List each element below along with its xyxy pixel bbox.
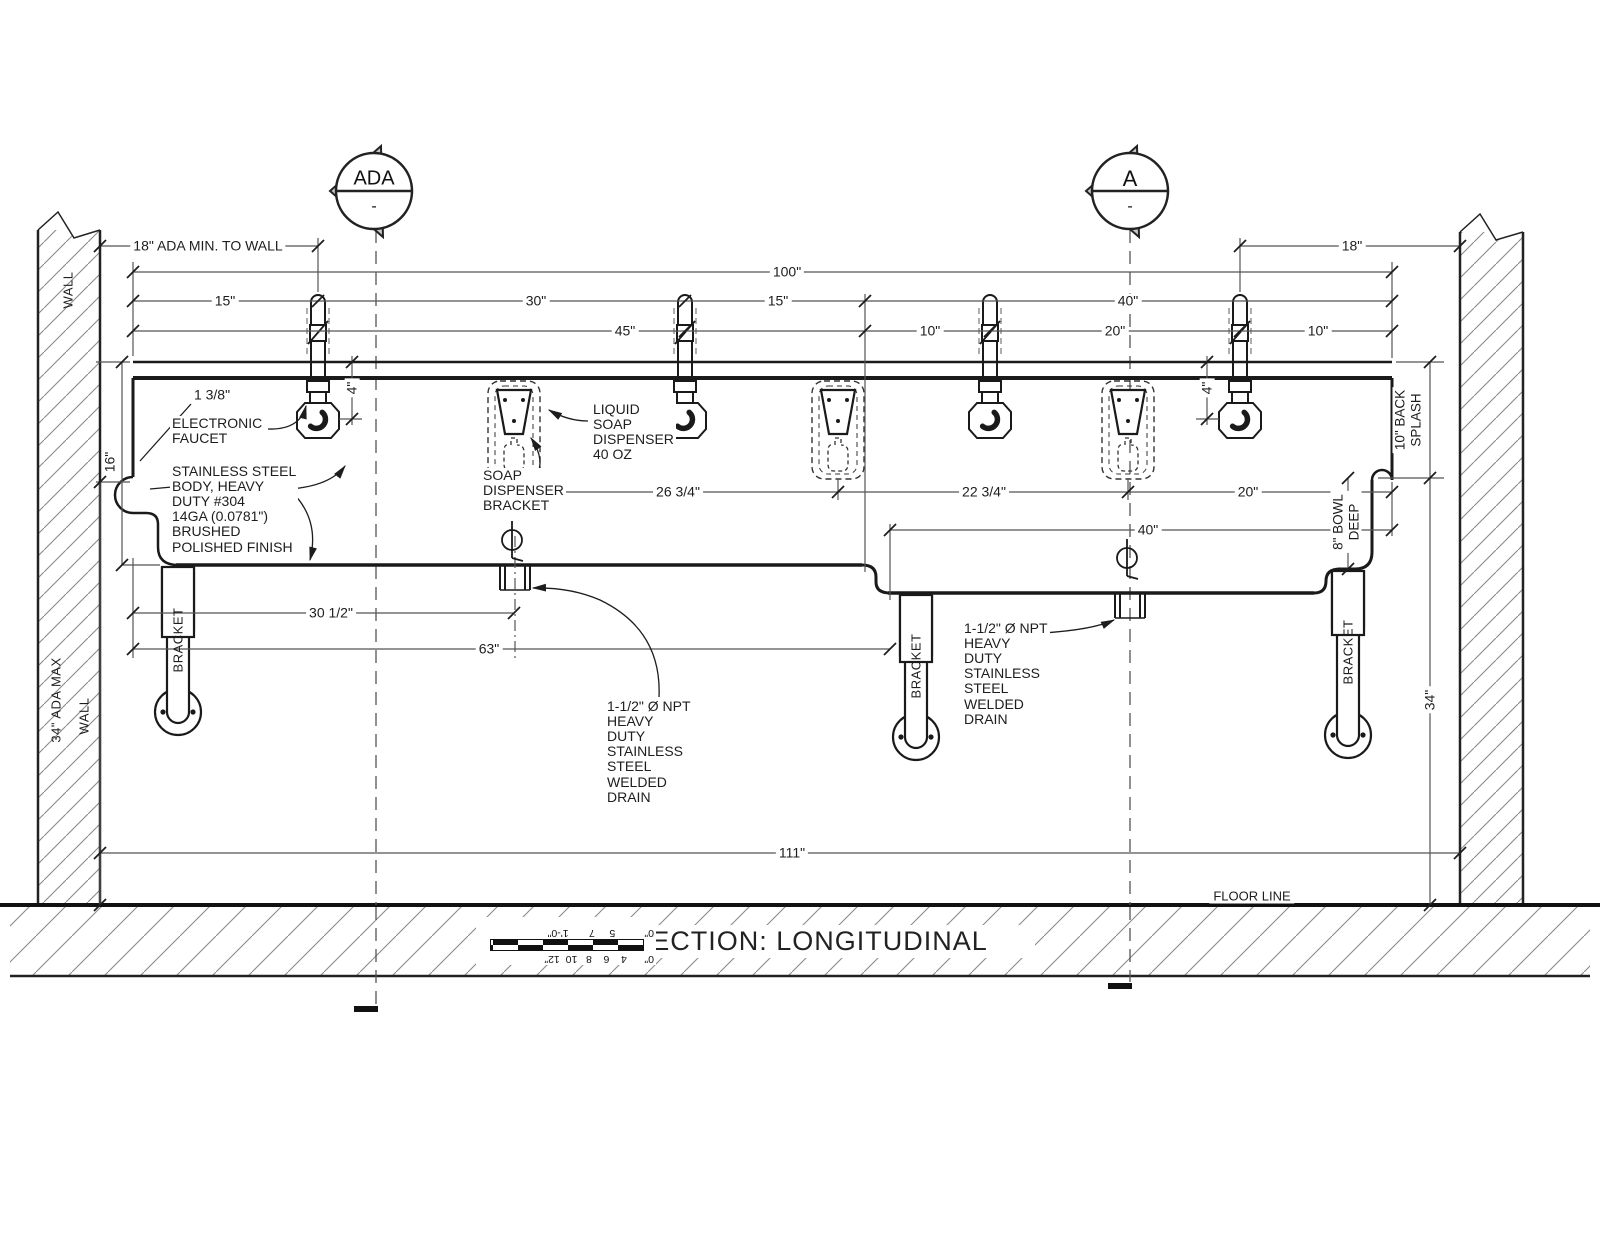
dim-22-34: 22 3/4"	[959, 485, 1009, 500]
dim-63: 63"	[476, 642, 503, 657]
dim-bowl-deep: 8" BOWL DEEP	[1330, 491, 1361, 553]
dim-20-right: 20"	[1235, 485, 1262, 500]
ada-marker-label: ADA	[353, 168, 394, 191]
dim-30-12: 30 1/2"	[306, 606, 356, 621]
section-marker-ada	[330, 146, 412, 237]
dim-18-right: 18"	[1339, 239, 1366, 254]
dim-15-mid: 15"	[765, 294, 792, 309]
dim-34-ada-max: 34" ADA MAX	[49, 657, 64, 742]
centerline-symbol-right	[1117, 539, 1138, 579]
faucet-1	[297, 295, 339, 438]
dim-20-top: 20"	[1102, 324, 1129, 339]
note-electronic-faucet: ELECTRONIC FAUCET	[170, 416, 264, 446]
note-drain-left: 1-1/2" Ø NPT HEAVY DUTY STAINLESS STEEL …	[605, 699, 693, 805]
graphic-scale-bar: 0" 4 6 8 10 12" 0" 5 7 1'-0"	[476, 917, 656, 965]
wall-label-top: WALL	[61, 272, 76, 309]
wall-label-bottom: WALL	[77, 698, 92, 735]
note-faucet-size: 1 3/8"	[192, 387, 232, 402]
dim-34-right: 34"	[1423, 687, 1438, 714]
dim-10-left: 10"	[917, 324, 944, 339]
dim-40-top: 40"	[1115, 294, 1142, 309]
scale-bar-graphic	[490, 939, 644, 951]
note-stainless-body: STAINLESS STEEL BODY, HEAVY DUTY #304 14…	[170, 464, 298, 555]
dimension-lines	[100, 246, 1460, 905]
dim-100: 100"	[770, 265, 804, 280]
note-soap-bracket: SOAP DISPENSER BRACKET	[481, 468, 566, 513]
a-marker-sub: -	[1127, 198, 1132, 216]
dim-45: 45"	[612, 324, 639, 339]
dim-26-34: 26 3/4"	[653, 485, 703, 500]
soap-dispenser-1	[488, 381, 540, 479]
dim-back-splash: 10" BACK SPLASH	[1392, 387, 1423, 453]
centerline-symbol-left	[502, 521, 523, 561]
right-wall	[1460, 214, 1523, 905]
faucet-3	[969, 295, 1011, 438]
drain-left	[500, 536, 530, 658]
dim-16: 16"	[103, 449, 118, 476]
section-linework	[0, 0, 1600, 1247]
dim-4-left: 4"	[345, 379, 360, 398]
dim-40-mid: 40"	[1135, 523, 1162, 538]
scale-bottom-labels: 0" 5 7 1'-0"	[478, 927, 654, 939]
dim-4-right: 4"	[1200, 379, 1215, 398]
dim-30: 30"	[523, 294, 550, 309]
soap-dispensers	[488, 381, 1154, 479]
left-wall	[38, 212, 100, 905]
faucet-4	[1219, 295, 1261, 438]
bracket-label-left: BRACKET	[171, 608, 186, 673]
bracket-label-middle: BRACKET	[909, 634, 924, 699]
note-drain-right: 1-1/2" Ø NPT HEAVY DUTY STAINLESS STEEL …	[962, 621, 1050, 727]
drawing-canvas: ADA - A - 18" ADA MIN. TO WALL 18" 100" …	[0, 0, 1600, 1247]
ada-marker-sub: -	[371, 198, 376, 216]
dim-10-right: 10"	[1305, 324, 1332, 339]
dim-111: 111"	[776, 846, 808, 861]
floor-line-label: FLOOR LINE	[1209, 889, 1294, 904]
dim-15-left: 15"	[212, 294, 239, 309]
soap-dispenser-3	[1102, 381, 1154, 479]
note-liquid-soap: LIQUID SOAP DISPENSER 40 OZ	[591, 402, 676, 462]
soap-dispenser-2	[812, 381, 864, 479]
dim-ada-min-to-wall: 18" ADA MIN. TO WALL	[130, 239, 285, 254]
bracket-label-right: BRACKET	[1341, 620, 1356, 685]
a-marker-label: A	[1123, 166, 1138, 192]
scale-top-labels: 0" 4 6 8 10 12"	[478, 952, 654, 964]
dimension-ticks	[94, 240, 1466, 911]
